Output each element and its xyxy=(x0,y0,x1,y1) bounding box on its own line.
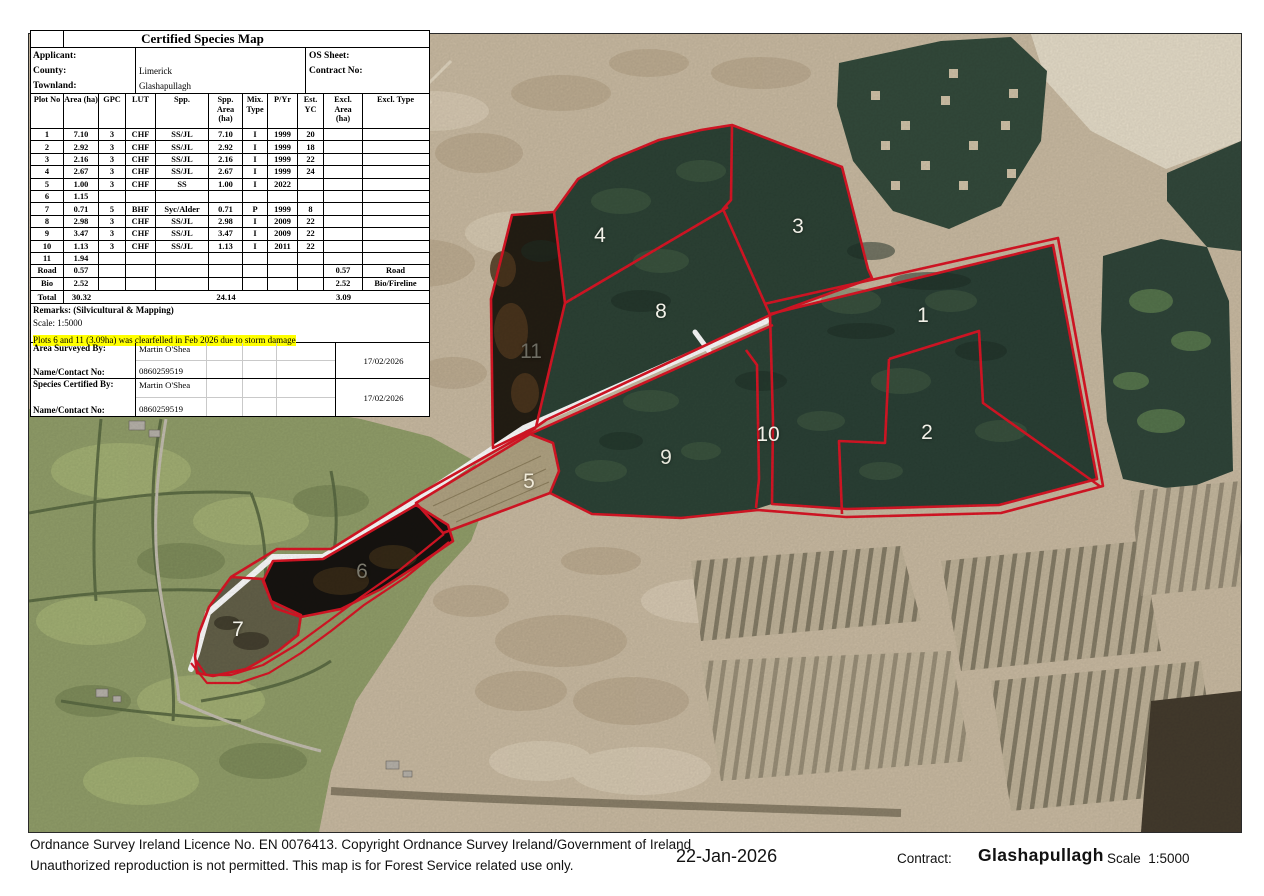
plot-cell xyxy=(126,265,156,276)
certified-contact-label: Name/Contact No: xyxy=(33,406,135,415)
plot-cell xyxy=(363,203,428,214)
plot-cell: 1 xyxy=(31,129,64,140)
info-row-townland: Townland: Glashapullagh xyxy=(31,78,429,93)
certified-date: 17/02/2026 xyxy=(336,379,431,416)
footer-scale: Scale 1:5000 xyxy=(1107,851,1190,866)
plot-cell: 22 xyxy=(298,241,324,252)
plot-cell: I xyxy=(243,154,268,165)
plot-cell: 2 xyxy=(31,141,64,152)
plot-cell xyxy=(99,191,126,202)
plot-cell xyxy=(363,129,428,140)
plot-cell: 1999 xyxy=(268,154,298,165)
plot-cell xyxy=(298,179,324,190)
plot-cell: 0.57 xyxy=(324,265,363,276)
plot-cell: Road xyxy=(363,265,428,276)
plot-cell xyxy=(209,265,243,276)
plot-cell: 0.57 xyxy=(64,265,99,276)
plot-cell: 1.13 xyxy=(64,241,99,252)
plot-cell xyxy=(298,191,324,202)
contract-label: Contract: xyxy=(897,851,952,866)
plot-cell: 6 xyxy=(31,191,64,202)
plot-row: Bio2.522.52Bio/Fireline xyxy=(31,278,429,290)
plot-cell: 2.92 xyxy=(64,141,99,152)
plot-cell: I xyxy=(243,141,268,152)
plot-cell xyxy=(324,203,363,214)
plot-cell xyxy=(156,265,209,276)
plot-cell xyxy=(324,141,363,152)
column-header: Excl. Area (ha) xyxy=(324,94,363,128)
plot-cell: 1.00 xyxy=(209,179,243,190)
county-label: County: xyxy=(31,63,136,78)
os-attribution: Ordnance Survey Ireland Licence No. EN 0… xyxy=(30,834,691,876)
plot-cell xyxy=(268,265,298,276)
plot-cell xyxy=(268,278,298,290)
column-header: Area (ha) xyxy=(64,94,99,128)
column-header: Plot No xyxy=(31,94,64,128)
column-header: P/Yr xyxy=(268,94,298,128)
os-sheet-label: OS Sheet: xyxy=(306,51,428,61)
plot-cell: 22 xyxy=(298,216,324,227)
plot-cell: 2011 xyxy=(268,241,298,252)
column-header: LUT xyxy=(126,94,156,128)
plot-cell: CHF xyxy=(126,166,156,177)
total-row: Total 30.32 24.14 3.09 xyxy=(31,290,429,304)
surveyed-contact-label: Name/Contact No: xyxy=(33,368,135,377)
plot-cell: 22 xyxy=(298,154,324,165)
plot-cell: 2.98 xyxy=(209,216,243,227)
plot-cell xyxy=(209,191,243,202)
plot-cell: 0.71 xyxy=(64,203,99,214)
total-area: 30.32 xyxy=(64,291,99,303)
plot-cell: 3 xyxy=(99,141,126,152)
surveyed-phone: 0860259519 xyxy=(139,366,335,376)
certified-phone: 0860259519 xyxy=(139,404,335,414)
plot-cell: 1999 xyxy=(268,166,298,177)
plot-cell xyxy=(324,129,363,140)
plot-cell xyxy=(324,216,363,227)
column-header: Spp. Area (ha) xyxy=(209,94,243,128)
plot-cell xyxy=(268,191,298,202)
plot-cell: 1999 xyxy=(268,129,298,140)
plot-cell: SS/JL xyxy=(156,141,209,152)
plot-cell: 22 xyxy=(298,228,324,239)
plot-cell: 1.94 xyxy=(64,253,99,264)
county-value: Limerick xyxy=(136,63,306,78)
plot-cell xyxy=(298,253,324,264)
plot-cell xyxy=(126,253,156,264)
plot-row: Road0.570.57Road xyxy=(31,265,429,277)
plot-cell: 24 xyxy=(298,166,324,177)
surveyed-name: Martin O'Shea xyxy=(139,344,335,354)
plot-cell xyxy=(126,278,156,290)
table-title-row: Certified Species Map xyxy=(31,31,429,48)
plot-table-body: 17.103CHFSS/JL7.10I19992022.923CHFSS/JL2… xyxy=(31,129,429,290)
plot-cell xyxy=(324,228,363,239)
plot-cell xyxy=(324,154,363,165)
plot-cell: 2.16 xyxy=(209,154,243,165)
plot-cell: I xyxy=(243,228,268,239)
plot-cell xyxy=(243,265,268,276)
surveyed-block: Area Surveyed By: Name/Contact No: Marti… xyxy=(31,343,429,379)
applicant-label: Applicant: xyxy=(31,48,136,63)
certified-block: Species Certified By: Name/Contact No: M… xyxy=(31,379,429,416)
plot-cell xyxy=(363,253,428,264)
plot-row: 42.673CHFSS/JL2.67I199924 xyxy=(31,166,429,178)
plot-cell: 1.15 xyxy=(64,191,99,202)
plot-cell: Bio xyxy=(31,278,64,290)
certified-name: Martin O'Shea xyxy=(139,380,335,390)
plot-cell: 3 xyxy=(99,228,126,239)
title-stub-cell xyxy=(31,31,64,47)
plot-cell xyxy=(126,191,156,202)
plot-cell: Bio/Fireline xyxy=(363,278,428,290)
column-header: Mix. Type xyxy=(243,94,268,128)
plot-cell xyxy=(99,265,126,276)
townland-value: Glashapullagh xyxy=(136,78,306,93)
surveyed-by-label: Area Surveyed By: xyxy=(33,344,135,353)
plot-cell: 2.16 xyxy=(64,154,99,165)
page-title: Certified Species Map xyxy=(64,31,429,47)
plot-cell xyxy=(324,166,363,177)
plot-cell xyxy=(363,241,428,252)
plot-cell xyxy=(156,278,209,290)
plot-cell: 3 xyxy=(99,154,126,165)
plot-cell: SS/JL xyxy=(156,166,209,177)
plot-cell: 2009 xyxy=(268,228,298,239)
plot-cell: 3 xyxy=(99,179,126,190)
plot-cell: CHF xyxy=(126,154,156,165)
plot-row: 51.003CHFSS1.00I2022 xyxy=(31,179,429,191)
plot-cell: SS xyxy=(156,179,209,190)
plot-row: 82.983CHFSS/JL2.98I200922 xyxy=(31,216,429,228)
scale-line: Scale: 1:5000 xyxy=(31,318,429,330)
plot-cell: 1999 xyxy=(268,141,298,152)
plot-cell: I xyxy=(243,166,268,177)
plot-cell xyxy=(363,179,428,190)
surveyed-date: 17/02/2026 xyxy=(336,343,431,378)
plot-cell: 3 xyxy=(99,241,126,252)
plot-cell: 7.10 xyxy=(64,129,99,140)
plot-cell: 3 xyxy=(99,166,126,177)
plot-cell: I xyxy=(243,216,268,227)
plot-cell xyxy=(298,265,324,276)
plot-cell: 3 xyxy=(99,216,126,227)
plot-cell xyxy=(324,241,363,252)
plot-cell: SS/JL xyxy=(156,154,209,165)
plot-cell: SS/JL xyxy=(156,216,209,227)
plot-cell: 3 xyxy=(99,129,126,140)
plot-cell: 11 xyxy=(31,253,64,264)
plot-cell: 2022 xyxy=(268,179,298,190)
plot-cell xyxy=(243,253,268,264)
townland-label: Townland: xyxy=(31,78,136,93)
plot-cell xyxy=(99,278,126,290)
plot-cell xyxy=(324,191,363,202)
plot-cell: 8 xyxy=(298,203,324,214)
plot-cell: CHF xyxy=(126,141,156,152)
species-map-table: Certified Species Map Applicant: OS Shee… xyxy=(30,30,430,417)
plot-row: 70.715BHFSyc/Alder0.71P19998 xyxy=(31,203,429,215)
column-header: GPC xyxy=(99,94,126,128)
plot-cell: 20 xyxy=(298,129,324,140)
plot-cell xyxy=(324,179,363,190)
plot-cell: 2.52 xyxy=(64,278,99,290)
plot-cell: SS/JL xyxy=(156,129,209,140)
plot-row: 17.103CHFSS/JL7.10I199920 xyxy=(31,129,429,141)
plot-cell xyxy=(363,141,428,152)
plot-cell xyxy=(243,191,268,202)
remarks-label: Remarks: (Silvicultural & Mapping) xyxy=(31,304,429,318)
plot-cell xyxy=(209,278,243,290)
plot-cell: 3.47 xyxy=(209,228,243,239)
plot-cell: 2.52 xyxy=(324,278,363,290)
plot-cell: CHF xyxy=(126,228,156,239)
plot-cell xyxy=(268,253,298,264)
plot-cell: CHF xyxy=(126,216,156,227)
plot-cell xyxy=(324,253,363,264)
plot-cell: Syc/Alder xyxy=(156,203,209,214)
contract-no-label: Contract No: xyxy=(306,66,428,76)
column-header: Est. YC xyxy=(298,94,324,128)
total-label: Total xyxy=(31,291,64,303)
plot-cell: I xyxy=(243,241,268,252)
plot-cell: 3.47 xyxy=(64,228,99,239)
plot-cell: 10 xyxy=(31,241,64,252)
map-date: 22-Jan-2026 xyxy=(676,846,777,867)
certified-by-label: Species Certified By: xyxy=(33,380,135,389)
plot-cell: 3 xyxy=(31,154,64,165)
plot-row: 101.133CHFSS/JL1.13I201122 xyxy=(31,241,429,253)
certified-species-map-page: 4381111029567 Certified Species Map Appl… xyxy=(0,0,1264,896)
plot-row: 61.15 xyxy=(31,191,429,203)
column-header: Spp. xyxy=(156,94,209,128)
plot-cell: SS/JL xyxy=(156,228,209,239)
column-header: Excl. Type xyxy=(363,94,428,128)
plot-cell: 8 xyxy=(31,216,64,227)
applicant-value xyxy=(136,48,306,63)
plot-cell: P xyxy=(243,203,268,214)
plot-cell: BHF xyxy=(126,203,156,214)
highlight-row: Plots 6 and 11 (3.09ha) was clearfelled … xyxy=(31,330,429,343)
total-spp-area: 24.14 xyxy=(209,291,243,303)
plot-cell: CHF xyxy=(126,241,156,252)
plot-cell: SS/JL xyxy=(156,241,209,252)
plot-cell: 2.98 xyxy=(64,216,99,227)
info-row-applicant: Applicant: OS Sheet: xyxy=(31,48,429,63)
plot-cell: 0.71 xyxy=(209,203,243,214)
plot-cell: I xyxy=(243,129,268,140)
plot-cell: 5 xyxy=(99,203,126,214)
plot-cell xyxy=(363,216,428,227)
plot-row: 32.163CHFSS/JL2.16I199922 xyxy=(31,154,429,166)
plot-cell: 9 xyxy=(31,228,64,239)
attribution-line2: Unauthorized reproduction is not permitt… xyxy=(30,855,691,876)
plot-cell: 2009 xyxy=(268,216,298,227)
plot-cell: 2.67 xyxy=(209,166,243,177)
plot-cell: 2.92 xyxy=(209,141,243,152)
plot-cell: I xyxy=(243,179,268,190)
plot-cell: 1.13 xyxy=(209,241,243,252)
plot-table-header: Plot NoArea (ha)GPCLUTSpp.Spp. Area (ha)… xyxy=(31,93,429,129)
plot-cell xyxy=(156,191,209,202)
plot-cell xyxy=(209,253,243,264)
plot-cell xyxy=(243,278,268,290)
plot-cell xyxy=(363,228,428,239)
plot-cell: 1.00 xyxy=(64,179,99,190)
plot-row: 111.94 xyxy=(31,253,429,265)
plot-cell: CHF xyxy=(126,129,156,140)
plot-cell xyxy=(99,253,126,264)
plot-cell xyxy=(156,253,209,264)
plot-cell: 7 xyxy=(31,203,64,214)
plot-cell xyxy=(298,278,324,290)
plot-cell: 2.67 xyxy=(64,166,99,177)
plot-cell: 4 xyxy=(31,166,64,177)
info-row-county: County: Limerick Contract No: xyxy=(31,63,429,78)
plot-cell: 1999 xyxy=(268,203,298,214)
plot-row: 22.923CHFSS/JL2.92I199918 xyxy=(31,141,429,153)
plot-cell xyxy=(363,166,428,177)
plot-cell xyxy=(363,191,428,202)
plot-cell: 7.10 xyxy=(209,129,243,140)
plot-row: 93.473CHFSS/JL3.47I200922 xyxy=(31,228,429,240)
contract-value: Glashapullagh xyxy=(978,845,1104,866)
plot-cell: Road xyxy=(31,265,64,276)
plot-cell: 18 xyxy=(298,141,324,152)
plot-cell: 5 xyxy=(31,179,64,190)
plot-cell xyxy=(363,154,428,165)
plot-cell: CHF xyxy=(126,179,156,190)
attribution-line1: Ordnance Survey Ireland Licence No. EN 0… xyxy=(30,834,691,855)
total-excl-area: 3.09 xyxy=(324,291,363,303)
